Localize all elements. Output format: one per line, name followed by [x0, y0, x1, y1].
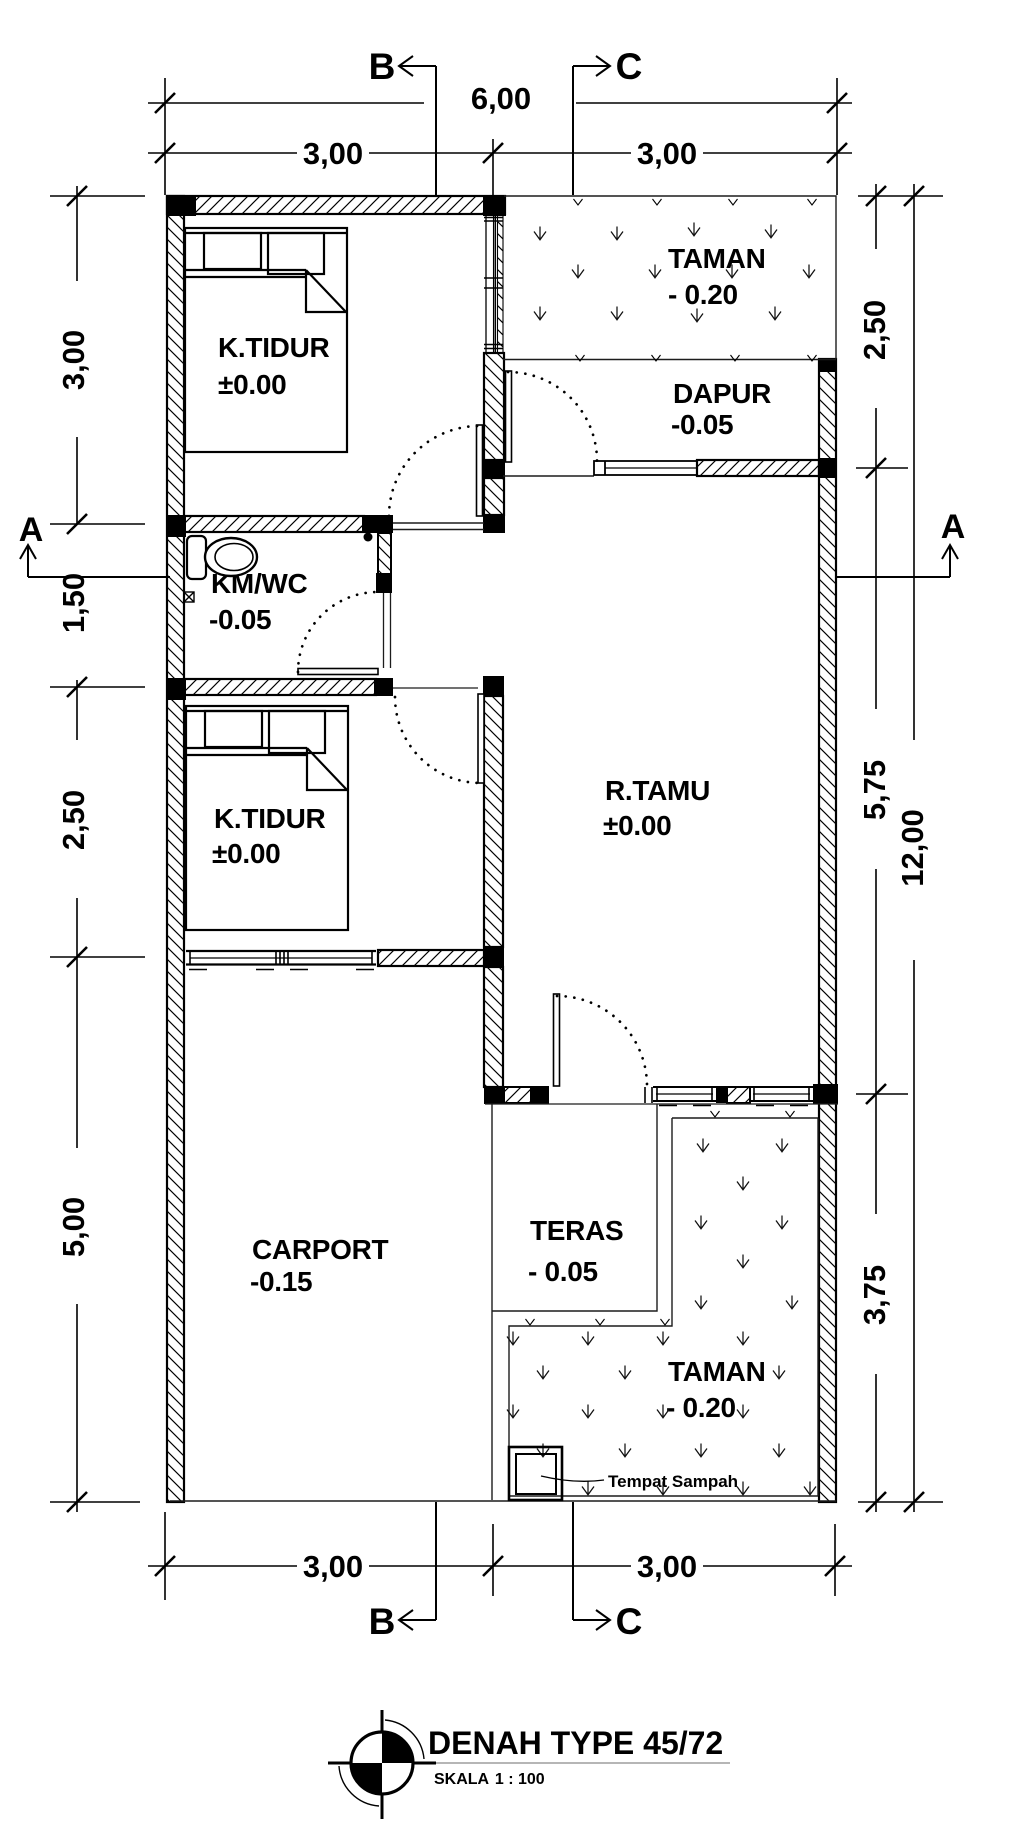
svg-text:3,00: 3,00: [637, 136, 697, 171]
svg-text:TAMAN: TAMAN: [668, 243, 766, 274]
svg-text:TERAS: TERAS: [530, 1215, 623, 1246]
svg-text:±0.00: ±0.00: [603, 810, 671, 841]
svg-text:SKALA 1 : 100: SKALA 1 : 100: [434, 1771, 545, 1788]
svg-text:A: A: [19, 511, 44, 549]
svg-text:3,75: 3,75: [857, 1265, 892, 1325]
svg-text:3,00: 3,00: [303, 136, 363, 171]
svg-text:DAPUR: DAPUR: [673, 378, 771, 409]
svg-text:2,50: 2,50: [857, 300, 892, 360]
svg-text:Tempat Sampah: Tempat Sampah: [608, 1472, 738, 1491]
svg-text:- 0.05: - 0.05: [528, 1256, 598, 1287]
svg-text:-0.05: -0.05: [209, 604, 271, 635]
svg-text:- 0.20: - 0.20: [668, 279, 738, 310]
svg-text:6,00: 6,00: [471, 81, 531, 116]
svg-text:A: A: [941, 508, 966, 546]
svg-text:-0.05: -0.05: [671, 409, 733, 440]
svg-text:5,75: 5,75: [857, 760, 892, 820]
svg-text:C: C: [616, 1601, 643, 1642]
svg-text:12,00: 12,00: [895, 809, 930, 887]
svg-text:CARPORT: CARPORT: [252, 1234, 389, 1265]
svg-text:C: C: [616, 46, 643, 87]
svg-text:- 0.20: - 0.20: [666, 1392, 736, 1423]
svg-text:DENAH TYPE 45/72: DENAH TYPE 45/72: [428, 1725, 723, 1761]
svg-text:5,00: 5,00: [56, 1197, 91, 1257]
svg-text:3,00: 3,00: [56, 330, 91, 390]
svg-text:±0.00: ±0.00: [218, 369, 286, 400]
svg-text:R.TAMU: R.TAMU: [605, 775, 710, 806]
svg-text:K.TIDUR: K.TIDUR: [214, 803, 326, 834]
svg-text:2,50: 2,50: [56, 790, 91, 850]
svg-text:1,50: 1,50: [56, 573, 91, 633]
svg-text:B: B: [369, 46, 396, 87]
svg-text:K.TIDUR: K.TIDUR: [218, 332, 330, 363]
svg-text:3,00: 3,00: [303, 1549, 363, 1584]
svg-text:B: B: [369, 1601, 396, 1642]
svg-text:-0.15: -0.15: [250, 1266, 312, 1297]
svg-text:±0.00: ±0.00: [212, 838, 280, 869]
svg-text:3,00: 3,00: [637, 1549, 697, 1584]
svg-text:TAMAN: TAMAN: [668, 1356, 766, 1387]
